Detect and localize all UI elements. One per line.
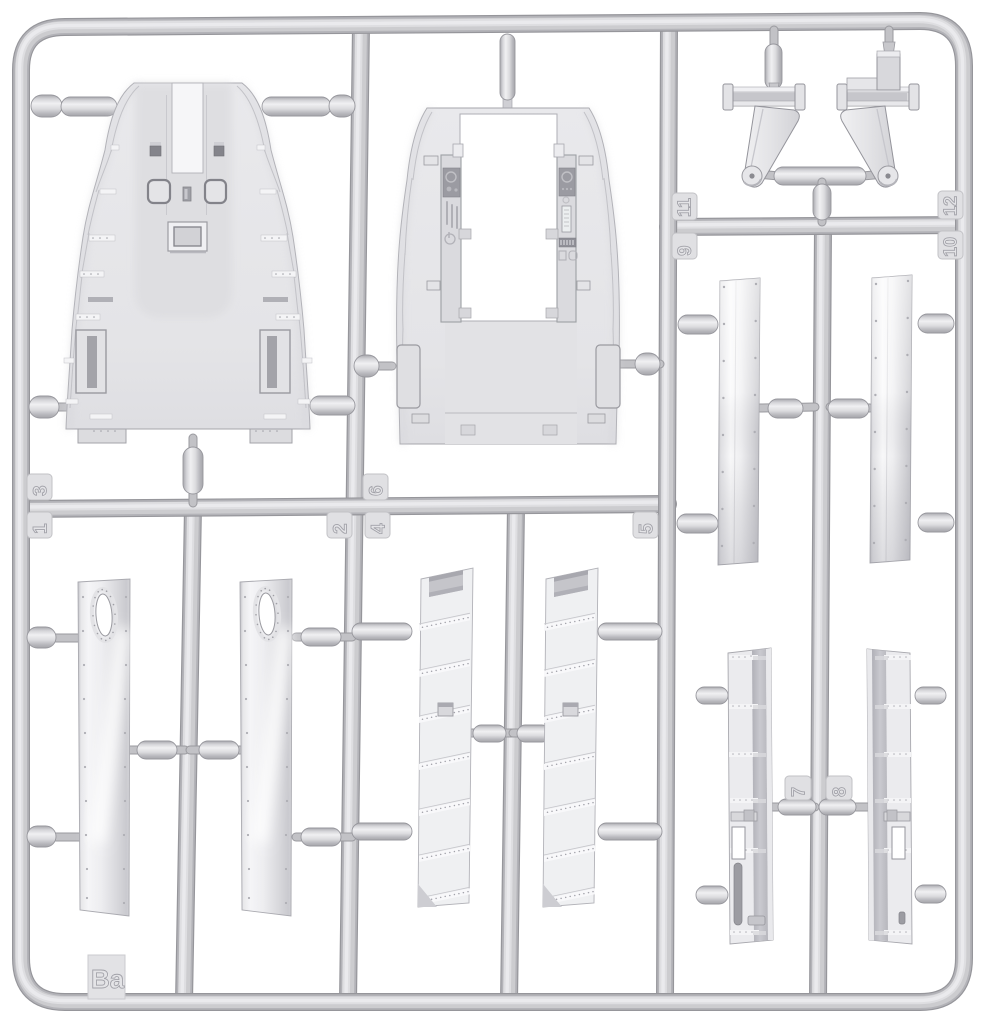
svg-text:7: 7	[789, 787, 809, 797]
svg-text:9: 9	[675, 245, 696, 256]
svg-text:Ba: Ba	[91, 964, 125, 994]
svg-text:12: 12	[941, 196, 961, 216]
svg-text:3: 3	[31, 485, 52, 496]
svg-text:6: 6	[367, 485, 388, 496]
svg-text:10: 10	[941, 237, 961, 257]
svg-text:2: 2	[331, 523, 352, 534]
svg-text:1: 1	[31, 523, 52, 534]
svg-text:5: 5	[637, 523, 658, 534]
svg-text:8: 8	[830, 787, 850, 797]
svg-text:11: 11	[675, 198, 695, 217]
svg-text:4: 4	[369, 523, 390, 534]
